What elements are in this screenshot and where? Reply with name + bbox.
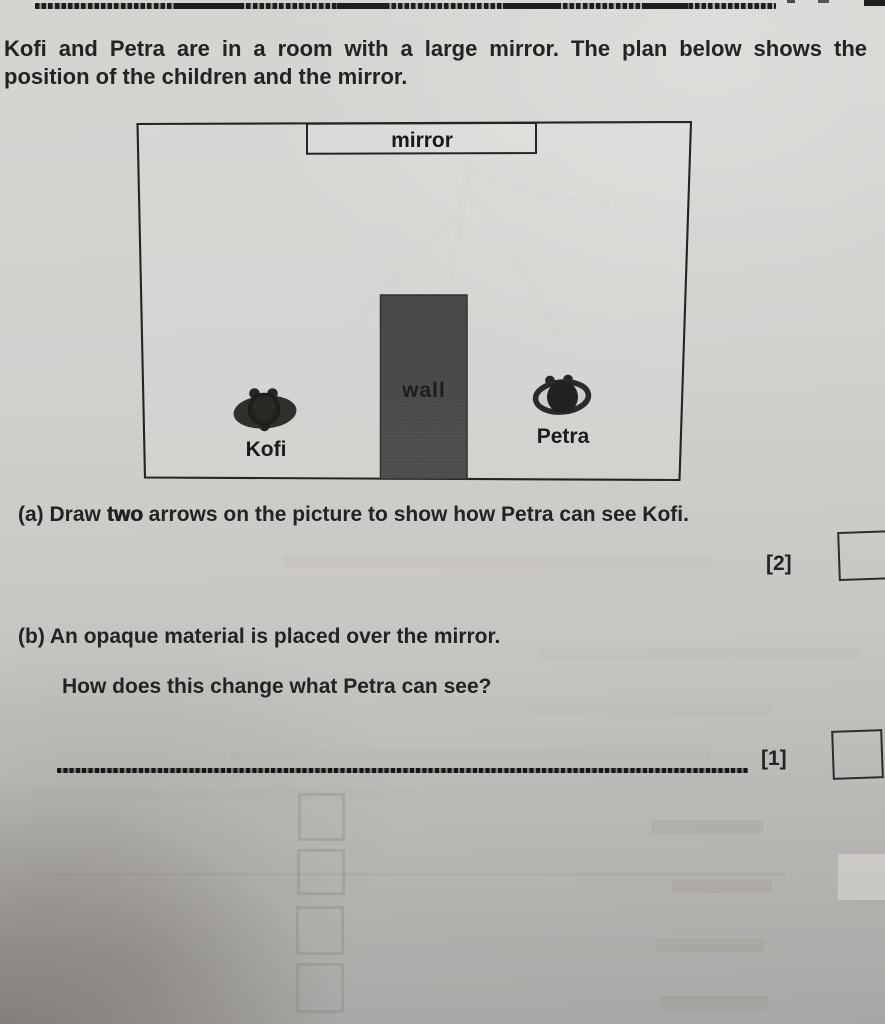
svg-text:Petra: Petra xyxy=(537,425,590,448)
svg-text:wall: wall xyxy=(401,379,446,402)
svg-text:mirror: mirror xyxy=(391,129,453,152)
svg-text:Kofi: Kofi xyxy=(246,438,287,461)
